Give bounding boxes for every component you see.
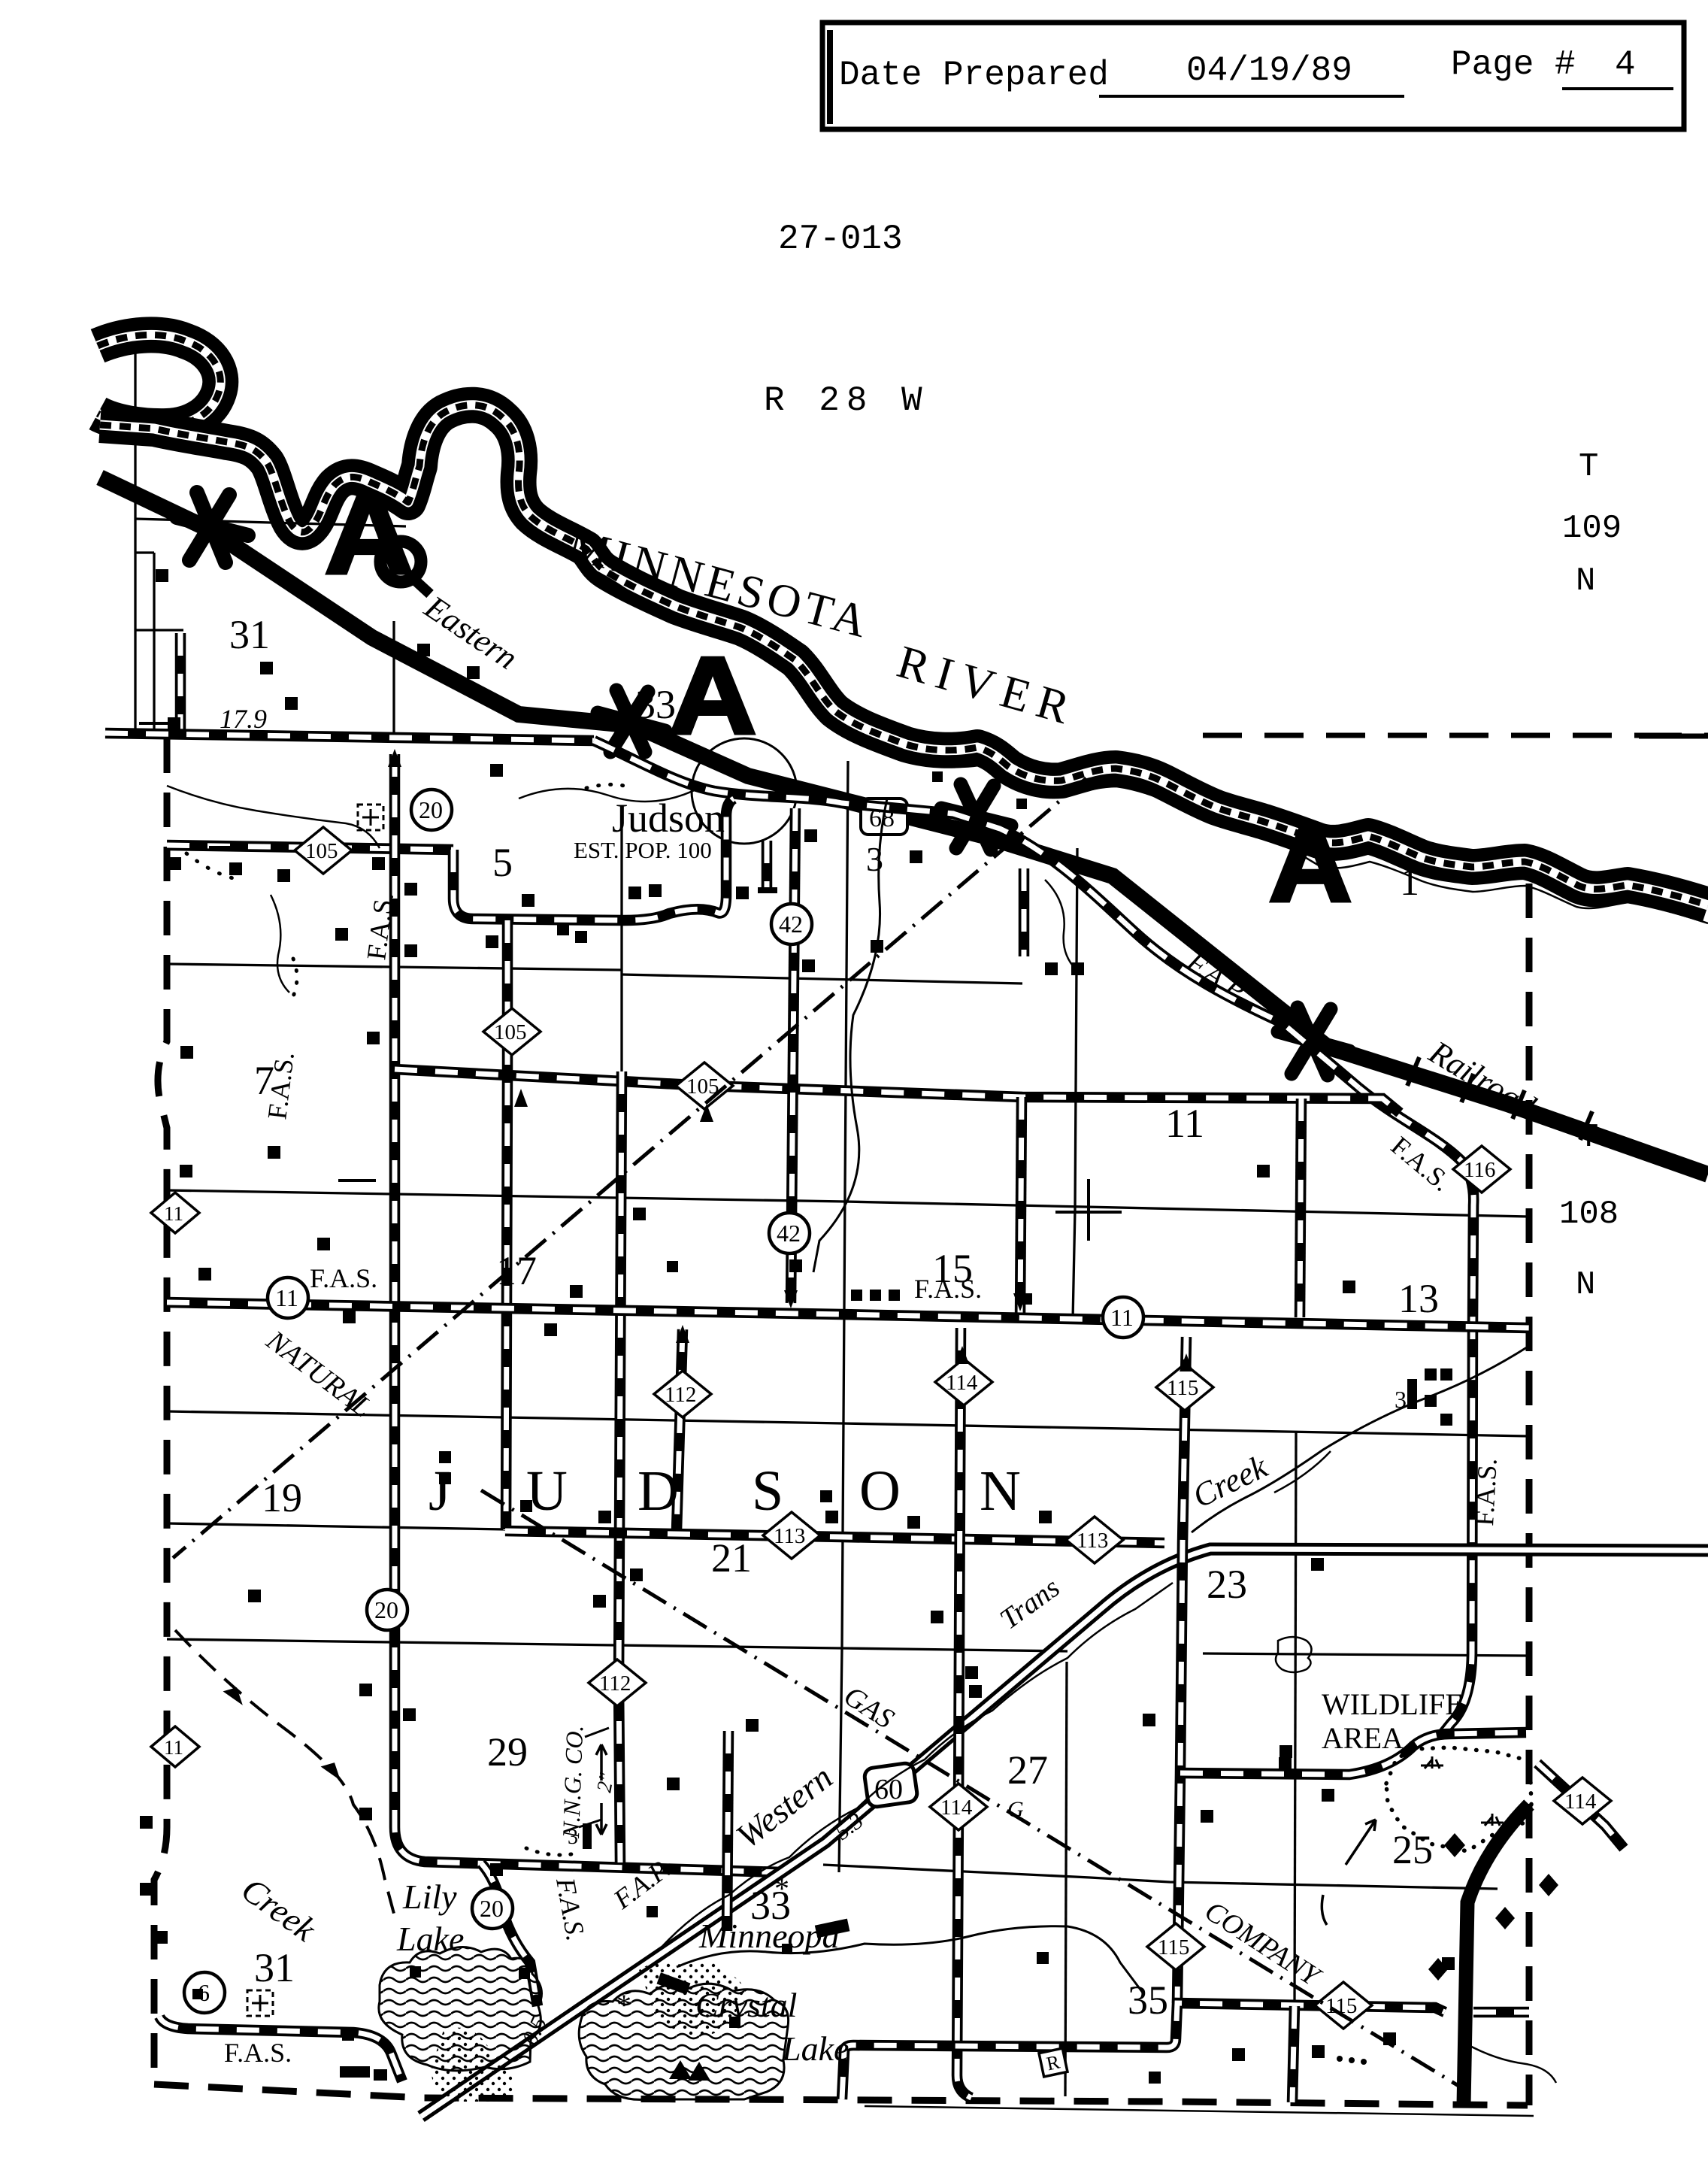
svg-text:Page #: Page # xyxy=(1451,45,1576,84)
svg-text:T: T xyxy=(1579,448,1598,486)
svg-text:109: 109 xyxy=(1562,510,1622,547)
svg-text:R 28 W: R 28 W xyxy=(764,381,929,420)
svg-text:Date Prepared: Date Prepared xyxy=(839,56,1109,95)
svg-text:O: O xyxy=(859,1459,901,1523)
svg-text:115: 115 xyxy=(1167,1376,1198,1400)
svg-text:5: 5 xyxy=(492,840,513,885)
svg-text:114: 114 xyxy=(1564,1790,1597,1814)
svg-text:114: 114 xyxy=(940,1796,973,1820)
svg-text:115: 115 xyxy=(1158,1935,1189,1959)
svg-text:COMPANY: COMPANY xyxy=(1199,1895,1328,1993)
svg-text:Creek: Creek xyxy=(235,1870,324,1950)
svg-text:27-013: 27-013 xyxy=(778,220,903,259)
svg-text:113: 113 xyxy=(1077,1529,1108,1553)
svg-text:33: 33 xyxy=(635,682,676,727)
svg-text:19: 19 xyxy=(262,1475,302,1520)
svg-text:11: 11 xyxy=(1165,1101,1204,1146)
svg-text:105: 105 xyxy=(494,1020,527,1044)
svg-text:Lily: Lily xyxy=(402,1878,457,1916)
svg-text:35: 35 xyxy=(1128,1978,1168,2023)
svg-text:WILDLIFE: WILDLIFE xyxy=(1322,1687,1464,1721)
svg-text:AREA: AREA xyxy=(1322,1721,1404,1755)
svg-text:113: 113 xyxy=(774,1524,805,1548)
svg-text:F.A.S.: F.A.S. xyxy=(914,1274,982,1304)
svg-text:20: 20 xyxy=(374,1596,398,1623)
svg-text:29: 29 xyxy=(487,1729,528,1775)
svg-text:F.A.S.: F.A.S. xyxy=(310,1263,377,1293)
svg-text:F.A.S.: F.A.S. xyxy=(1469,1457,1503,1526)
svg-text:*: * xyxy=(616,1988,631,2022)
svg-text:J: J xyxy=(429,1459,451,1523)
svg-text:GAS: GAS xyxy=(838,1680,899,1735)
svg-text:N: N xyxy=(1576,1266,1595,1304)
svg-text:Lake: Lake xyxy=(781,2029,849,2068)
svg-text:20: 20 xyxy=(419,796,443,823)
svg-text:04/19/89: 04/19/89 xyxy=(1186,51,1352,90)
svg-text:A: A xyxy=(1269,805,1352,923)
svg-text:3: 3 xyxy=(568,1826,578,1849)
svg-text:S: S xyxy=(752,1459,783,1523)
svg-text:N.N.G. CO.: N.N.G. CO. xyxy=(557,1725,588,1839)
svg-text:N: N xyxy=(980,1459,1021,1523)
svg-text:A: A xyxy=(325,471,413,597)
svg-text:13: 13 xyxy=(1398,1276,1439,1321)
svg-text:20: 20 xyxy=(480,1895,504,1922)
svg-text:D: D xyxy=(637,1459,679,1523)
svg-text:31: 31 xyxy=(229,612,270,657)
svg-text:42: 42 xyxy=(777,1220,801,1247)
svg-text:112: 112 xyxy=(665,1383,696,1407)
svg-text:105: 105 xyxy=(305,839,338,863)
svg-text:F.A.S.: F.A.S. xyxy=(224,2038,292,2068)
svg-text:11: 11 xyxy=(1110,1304,1134,1331)
svg-text:31: 31 xyxy=(254,1945,295,1990)
svg-text:17.9: 17.9 xyxy=(220,704,267,734)
svg-text:11: 11 xyxy=(164,1202,183,1225)
svg-text:1: 1 xyxy=(1400,861,1419,904)
svg-text:Judson: Judson xyxy=(612,796,725,841)
svg-text:N: N xyxy=(1576,562,1595,600)
svg-text:114: 114 xyxy=(946,1371,978,1395)
svg-text:11: 11 xyxy=(164,1736,183,1759)
svg-text:42: 42 xyxy=(779,911,803,938)
svg-text:21: 21 xyxy=(711,1535,752,1581)
svg-text:108: 108 xyxy=(1559,1196,1619,1233)
svg-text:116: 116 xyxy=(1464,1158,1495,1182)
svg-text:*: * xyxy=(774,1872,789,1905)
svg-text:112: 112 xyxy=(599,1672,631,1696)
svg-text:F.A.S.: F.A.S. xyxy=(550,1875,591,1943)
svg-text:U: U xyxy=(526,1459,568,1523)
svg-text:F.A.S.: F.A.S. xyxy=(1385,1130,1457,1197)
svg-text:11: 11 xyxy=(275,1284,298,1311)
svg-text:RIVER: RIVER xyxy=(892,636,1083,736)
svg-text:23: 23 xyxy=(1207,1562,1247,1607)
svg-text:NATURAL: NATURAL xyxy=(260,1324,377,1423)
svg-text:Trans: Trans xyxy=(995,1571,1066,1635)
svg-text:EST. POP. 100: EST. POP. 100 xyxy=(574,837,712,863)
svg-text:4: 4 xyxy=(1615,45,1636,84)
svg-text:27: 27 xyxy=(1007,1747,1048,1793)
